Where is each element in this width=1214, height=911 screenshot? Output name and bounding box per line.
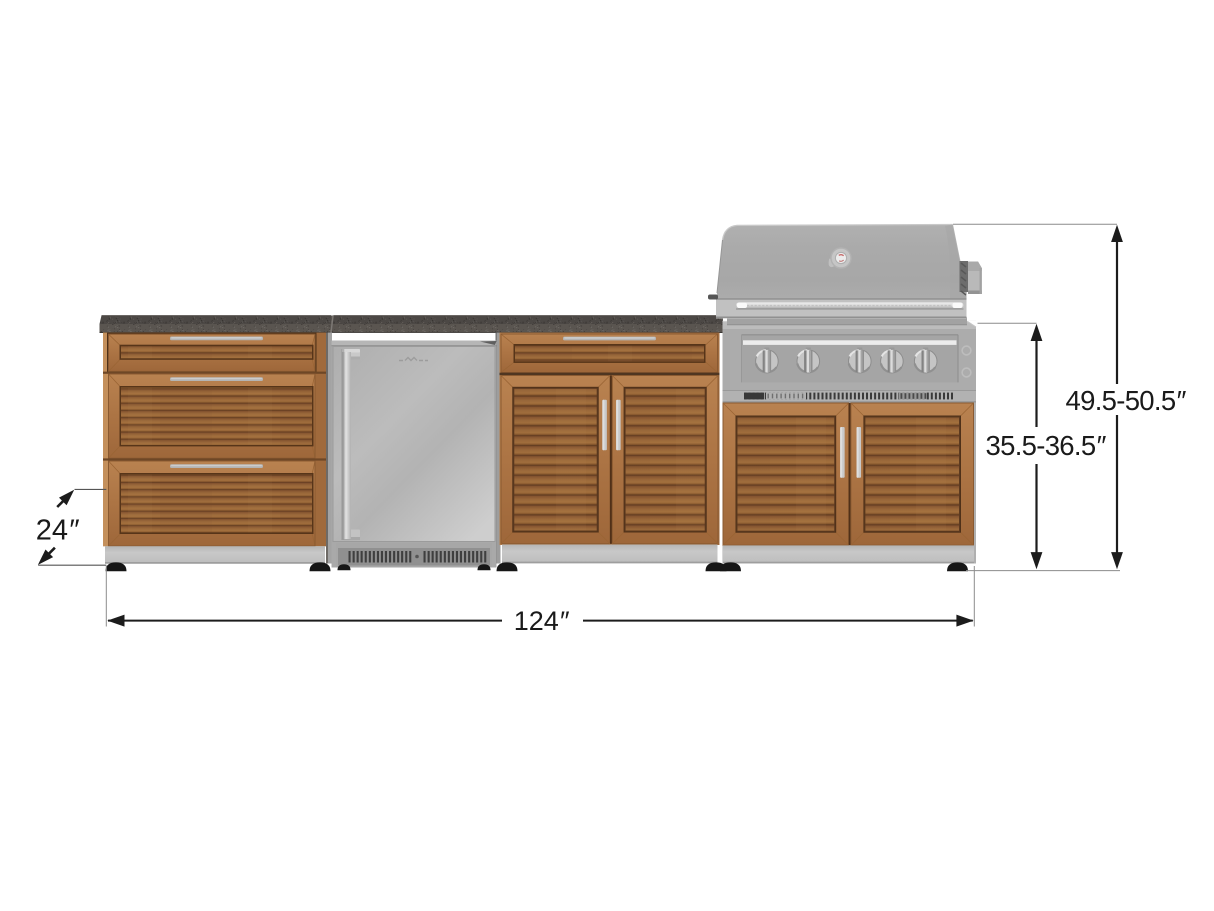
svg-text:124″: 124″ [514,606,570,636]
svg-text:49.5-50.5″: 49.5-50.5″ [1066,385,1187,416]
svg-text:24″: 24″ [36,515,80,547]
svg-text:35.5-36.5″: 35.5-36.5″ [986,430,1107,461]
